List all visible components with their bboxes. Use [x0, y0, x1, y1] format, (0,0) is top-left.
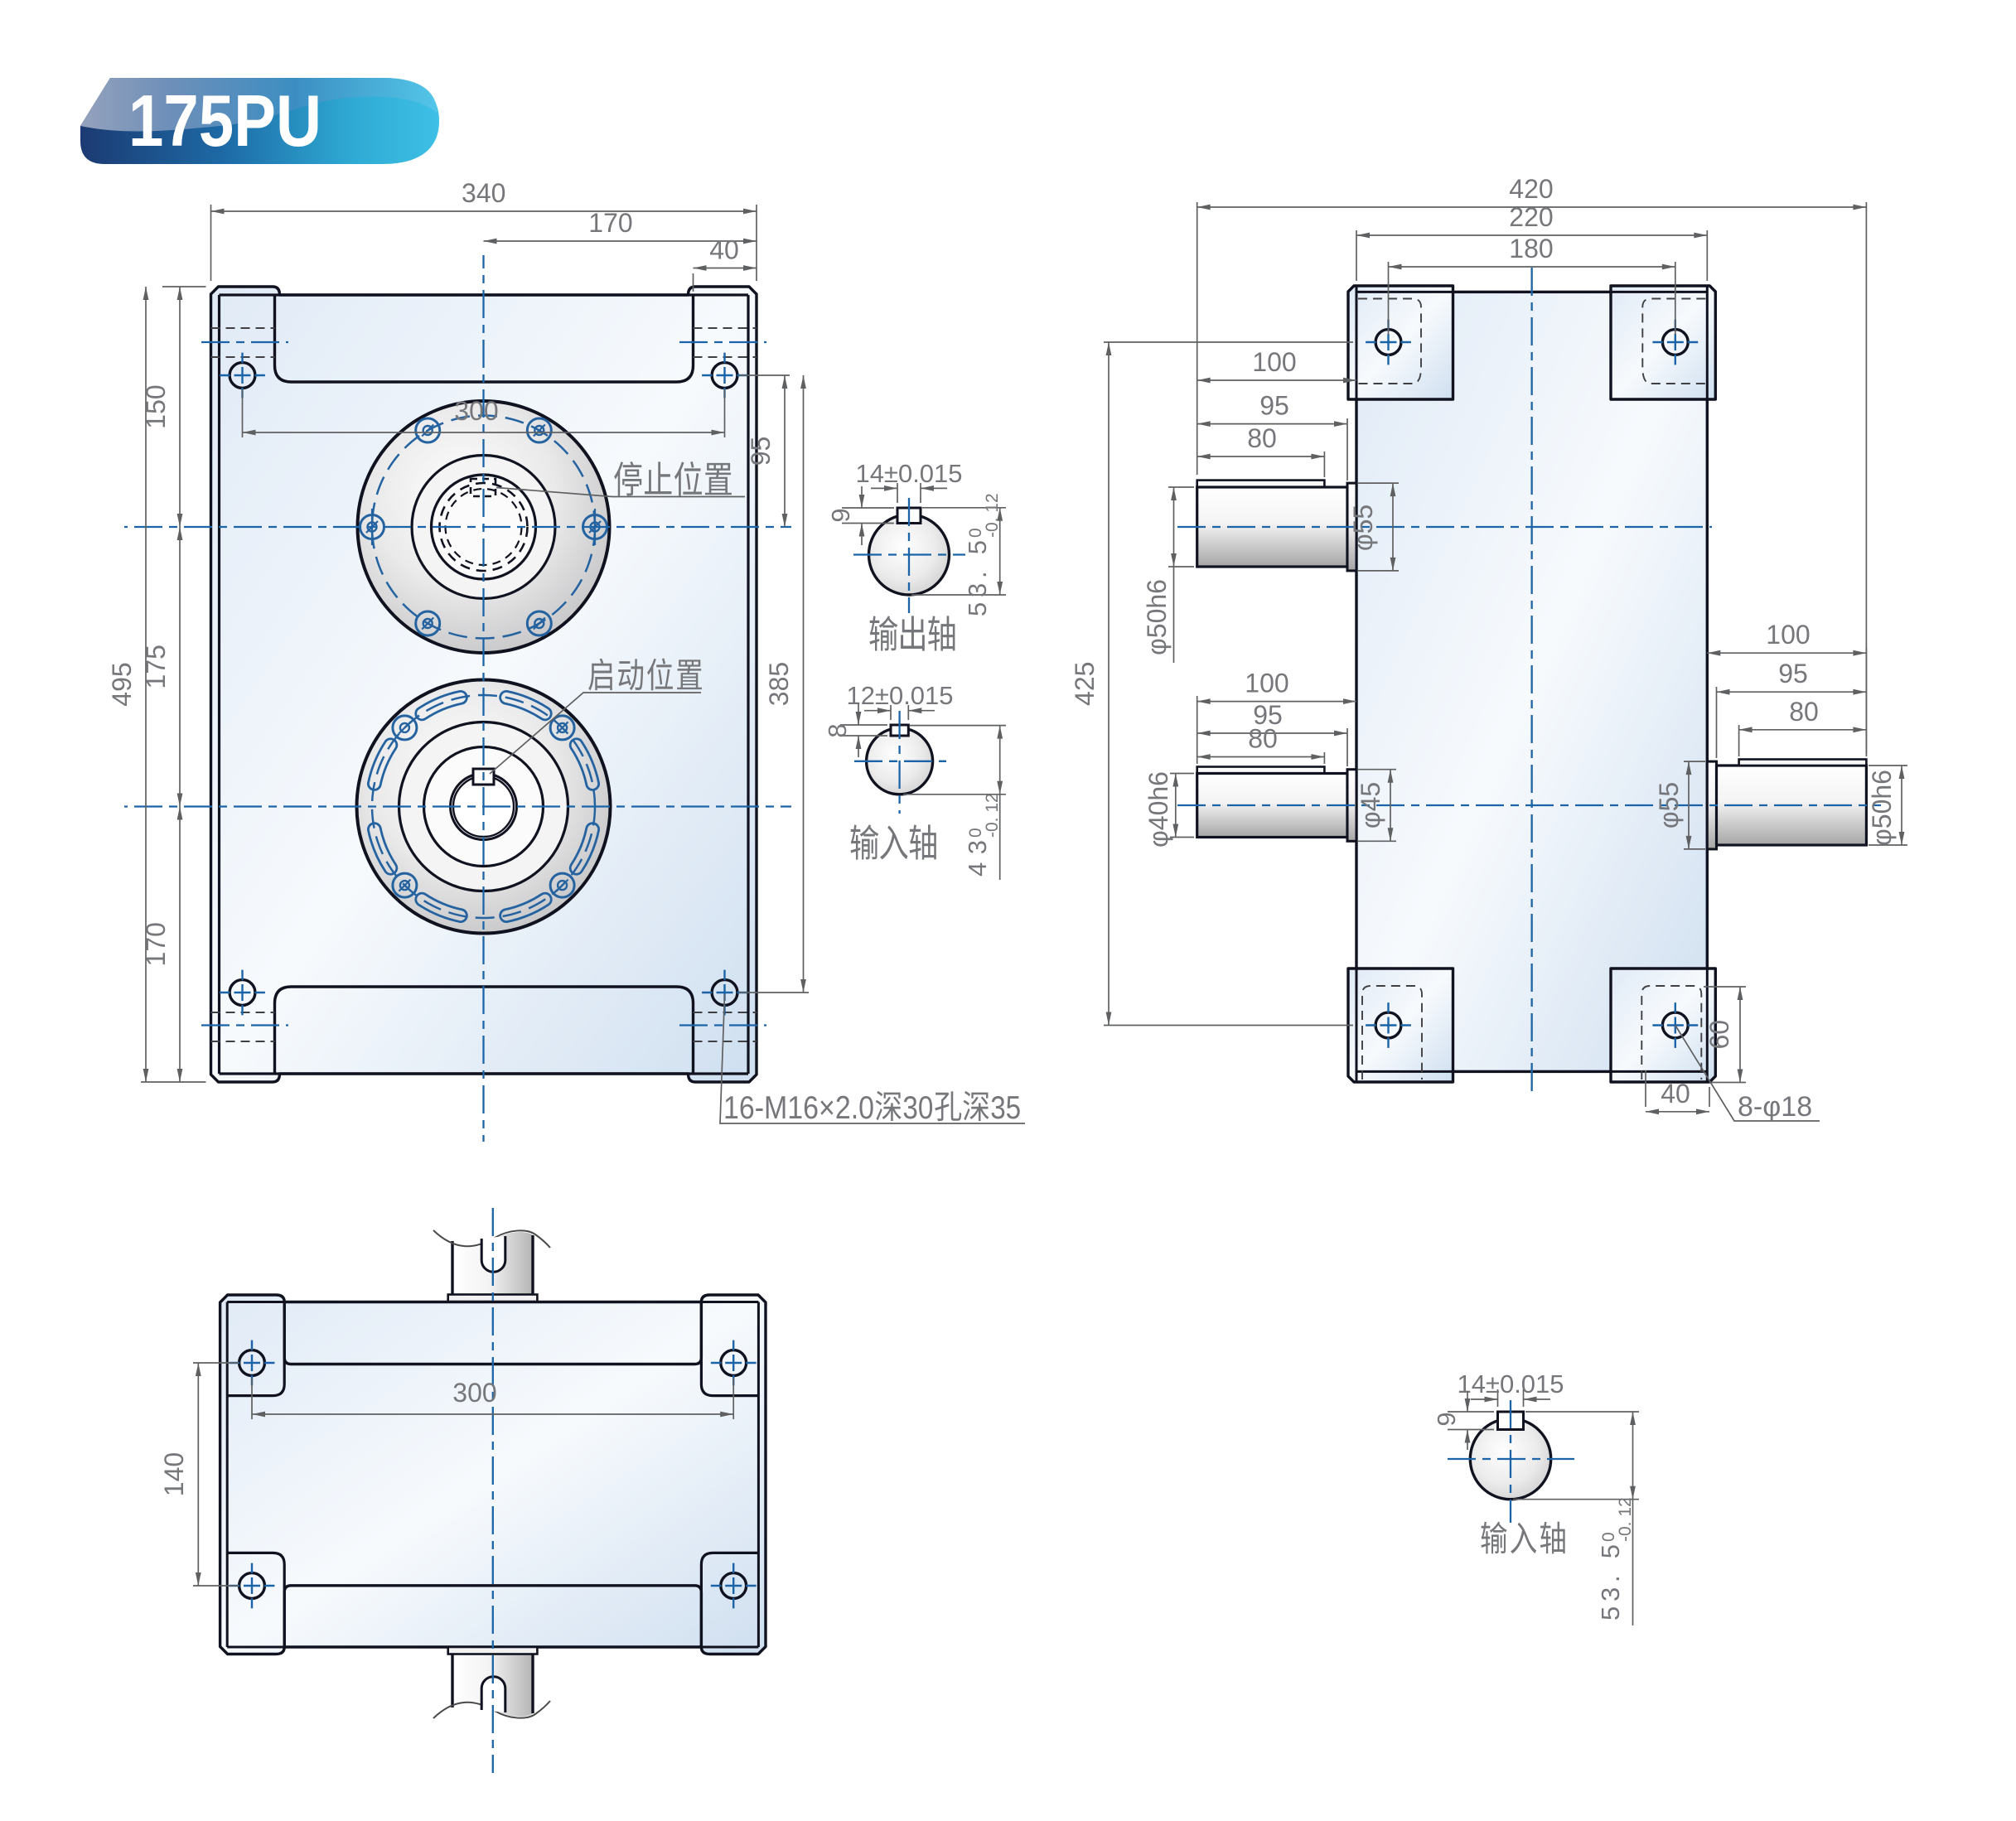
- svg-text:420: 420: [1509, 174, 1553, 204]
- svg-text:80: 80: [1789, 697, 1819, 727]
- svg-text:300: 300: [452, 1378, 496, 1408]
- svg-text:95: 95: [1778, 659, 1808, 688]
- svg-text:40: 40: [1661, 1079, 1690, 1109]
- svg-text:300: 300: [454, 396, 498, 426]
- svg-text:8: 8: [823, 723, 852, 737]
- svg-text:14±0.015: 14±0.015: [1457, 1369, 1564, 1398]
- svg-text:53. 5: 53. 5: [963, 540, 992, 616]
- svg-text:80: 80: [1248, 724, 1278, 754]
- svg-text:220: 220: [1509, 202, 1553, 232]
- svg-text:425: 425: [1070, 662, 1100, 706]
- svg-text:30: 30: [902, 1090, 933, 1126]
- svg-text:175: 175: [141, 645, 171, 688]
- svg-text:35: 35: [990, 1090, 1021, 1126]
- svg-text:80: 80: [1247, 423, 1277, 453]
- svg-text:-0. 12: -0. 12: [983, 793, 1002, 838]
- svg-text:40: 40: [709, 235, 739, 265]
- svg-text:φ55: φ55: [1348, 505, 1378, 551]
- svg-text:16-M16×2.0: 16-M16×2.0: [723, 1090, 874, 1126]
- svg-text:170: 170: [588, 208, 632, 238]
- svg-text:385: 385: [764, 662, 794, 706]
- svg-text:φ45: φ45: [1356, 782, 1385, 828]
- svg-text:53. 5: 53. 5: [1596, 1544, 1625, 1621]
- svg-text:9: 9: [1432, 1412, 1461, 1426]
- svg-text:150: 150: [141, 384, 171, 428]
- svg-text:9: 9: [826, 508, 855, 522]
- svg-text:φ40h6: φ40h6: [1143, 771, 1173, 848]
- svg-text:170: 170: [141, 922, 171, 966]
- svg-text:φ50h6: φ50h6: [1142, 579, 1172, 655]
- svg-text:340: 340: [462, 178, 505, 208]
- svg-text:180: 180: [1509, 234, 1553, 263]
- svg-text:12±0.015: 12±0.015: [846, 681, 953, 710]
- svg-text:-0. 12: -0. 12: [1616, 1497, 1635, 1542]
- svg-text:8-φ18: 8-φ18: [1738, 1091, 1812, 1123]
- svg-text:100: 100: [1766, 620, 1810, 650]
- svg-text:60: 60: [1704, 1020, 1734, 1050]
- svg-text:43: 43: [963, 840, 992, 877]
- svg-text:175PU: 175PU: [128, 80, 321, 162]
- svg-text:-0. 12: -0. 12: [983, 493, 1002, 538]
- svg-text:φ55: φ55: [1654, 782, 1684, 828]
- svg-text:140: 140: [159, 1452, 189, 1496]
- svg-text:100: 100: [1252, 347, 1296, 377]
- svg-text:95: 95: [1259, 391, 1289, 421]
- svg-text:14±0.015: 14±0.015: [855, 459, 962, 488]
- svg-text:495: 495: [107, 662, 137, 706]
- svg-text:100: 100: [1245, 669, 1288, 698]
- svg-text:95: 95: [746, 437, 776, 466]
- svg-text:φ50h6: φ50h6: [1867, 770, 1897, 846]
